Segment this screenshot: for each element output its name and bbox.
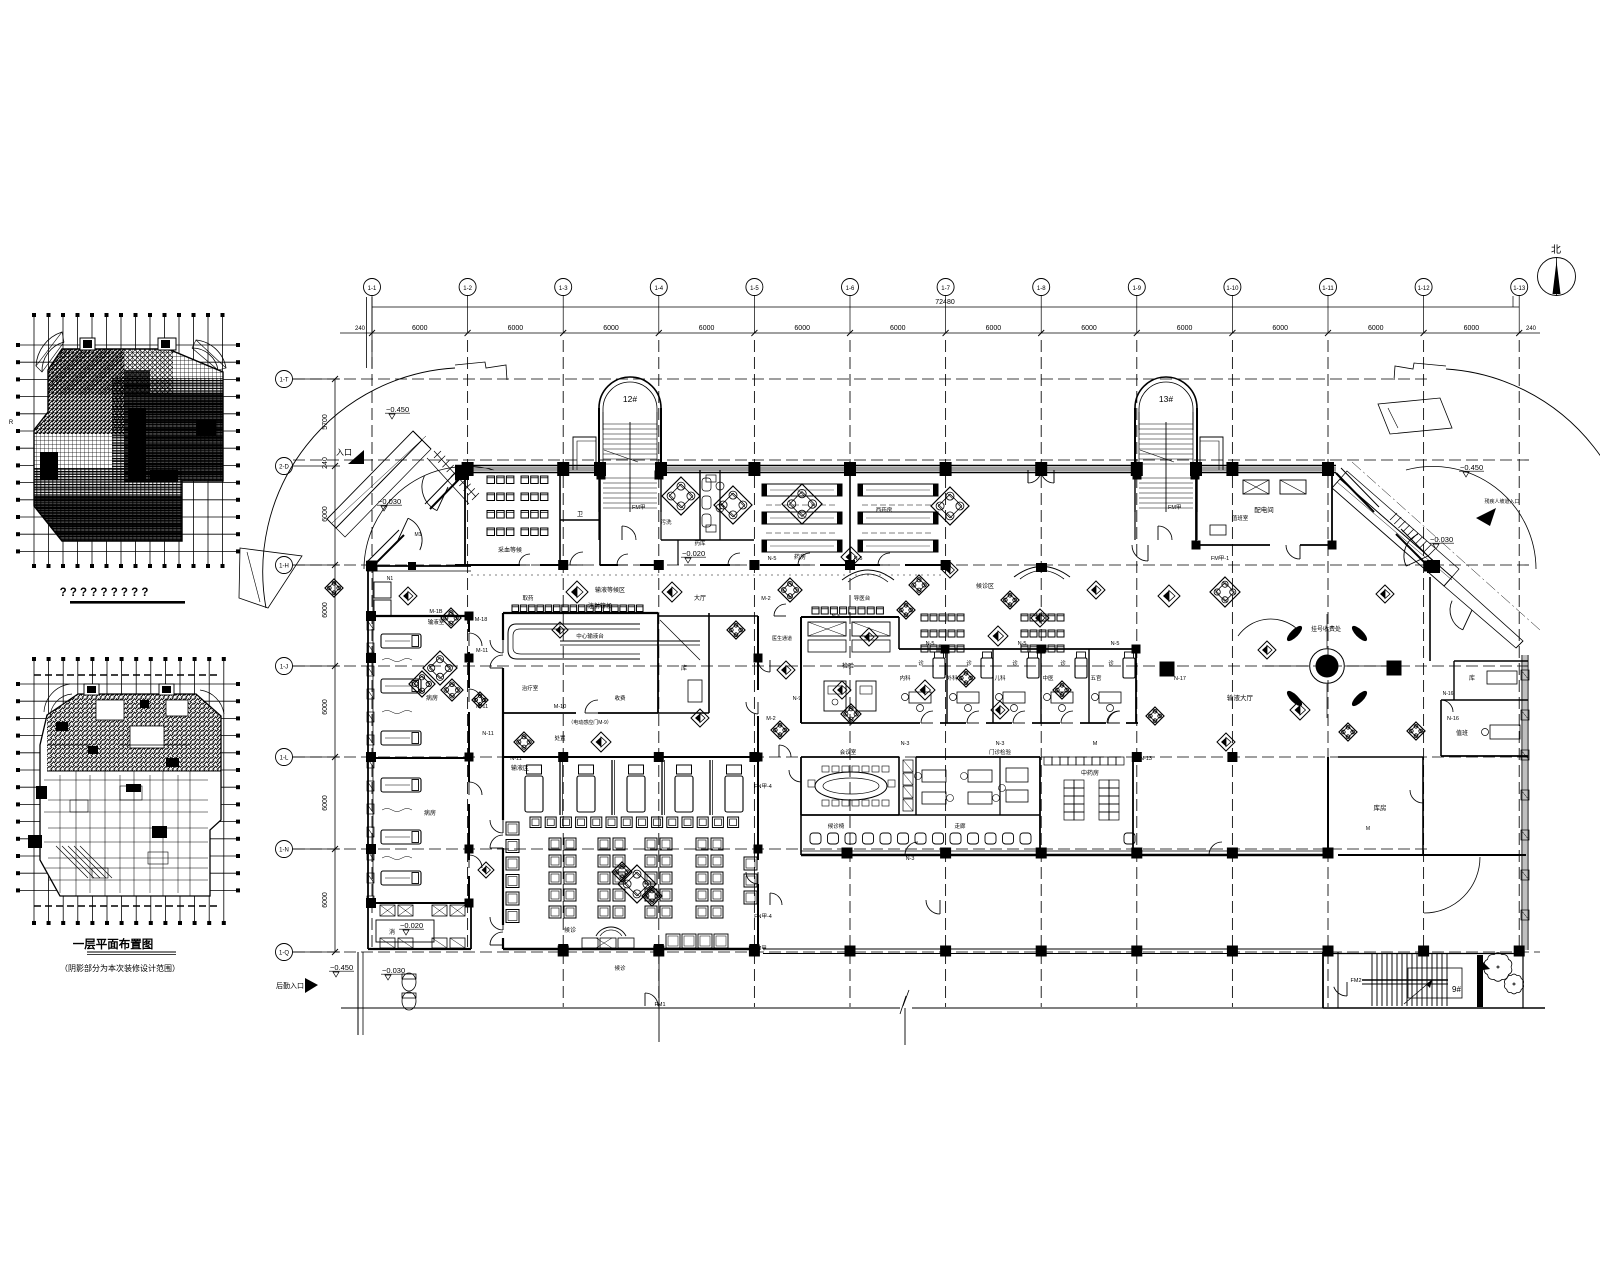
svg-text:1-8: 1-8 bbox=[1037, 286, 1046, 292]
svg-text:输液区: 输液区 bbox=[511, 764, 529, 772]
svg-text:N-9: N-9 bbox=[793, 696, 802, 702]
svg-text:R: R bbox=[9, 420, 14, 426]
svg-text:1-T: 1-T bbox=[280, 378, 289, 384]
svg-text:FM甲: FM甲 bbox=[1168, 504, 1181, 511]
svg-text:1-H: 1-H bbox=[279, 564, 289, 570]
svg-text:240: 240 bbox=[322, 457, 329, 469]
svg-text:6000: 6000 bbox=[1368, 325, 1384, 332]
svg-text:−0.450: −0.450 bbox=[386, 405, 409, 414]
svg-text:（电动感应门M-9）: （电动感应门M-9） bbox=[568, 719, 612, 726]
svg-text:N1: N1 bbox=[387, 576, 394, 582]
svg-text:中药房: 中药房 bbox=[1081, 769, 1099, 777]
svg-text:药库: 药库 bbox=[694, 539, 706, 547]
svg-text:检验: 检验 bbox=[842, 662, 854, 670]
svg-text:污洗: 污洗 bbox=[660, 518, 672, 526]
svg-text:库: 库 bbox=[681, 664, 687, 672]
svg-text:1-1: 1-1 bbox=[368, 286, 377, 292]
svg-text:2-D: 2-D bbox=[279, 465, 289, 471]
svg-text:收费: 收费 bbox=[614, 694, 626, 702]
svg-text:取药: 取药 bbox=[522, 594, 534, 602]
svg-text:一层平面布置图: 一层平面布置图 bbox=[73, 937, 154, 951]
svg-text:N-5: N-5 bbox=[832, 614, 841, 620]
svg-text:走廊: 走廊 bbox=[954, 822, 966, 830]
svg-text:N-17: N-17 bbox=[1174, 676, 1186, 682]
svg-text:N-16: N-16 bbox=[1443, 691, 1454, 697]
svg-text:1-J: 1-J bbox=[280, 665, 288, 671]
svg-text:6000: 6000 bbox=[603, 325, 619, 332]
svg-text:1-12: 1-12 bbox=[1418, 286, 1431, 292]
svg-text:挂号收费处: 挂号收费处 bbox=[1311, 625, 1341, 633]
svg-text:? ? ? ? ? ? ? ? ?: ? ? ? ? ? ? ? ? ? bbox=[60, 587, 149, 599]
svg-text:1-6: 1-6 bbox=[846, 286, 855, 292]
svg-text:诊: 诊 bbox=[1060, 659, 1066, 667]
svg-text:后勤入口: 后勤入口 bbox=[276, 981, 304, 990]
svg-text:240: 240 bbox=[355, 326, 366, 332]
svg-text:6000: 6000 bbox=[794, 325, 810, 332]
svg-text:6000: 6000 bbox=[322, 602, 329, 618]
svg-text:N-11: N-11 bbox=[482, 731, 494, 737]
svg-text:6000: 6000 bbox=[699, 325, 715, 332]
svg-text:1-4: 1-4 bbox=[654, 286, 663, 292]
svg-text:大厅: 大厅 bbox=[694, 594, 706, 602]
svg-text:候诊区: 候诊区 bbox=[976, 582, 994, 590]
svg-text:9#: 9# bbox=[1452, 985, 1461, 994]
svg-text:6000: 6000 bbox=[1081, 325, 1097, 332]
svg-text:M1: M1 bbox=[415, 532, 422, 538]
svg-text:1-10: 1-10 bbox=[1226, 286, 1239, 292]
svg-text:6000: 6000 bbox=[412, 325, 428, 332]
svg-text:候诊椅: 候诊椅 bbox=[828, 822, 845, 830]
svg-text:导医台: 导医台 bbox=[854, 594, 871, 602]
svg-text:中医: 中医 bbox=[1042, 674, 1054, 682]
svg-text:FM2: FM2 bbox=[1351, 978, 1362, 984]
svg-text:FN甲-4: FN甲-4 bbox=[754, 783, 772, 790]
svg-text:M-11: M-11 bbox=[476, 704, 488, 710]
svg-text:6000: 6000 bbox=[1464, 325, 1480, 332]
svg-text:−0.030: −0.030 bbox=[378, 497, 401, 506]
svg-text:6000: 6000 bbox=[890, 325, 906, 332]
svg-text:病房: 病房 bbox=[426, 694, 438, 702]
svg-text:1-3: 1-3 bbox=[559, 286, 568, 292]
svg-text:治疗室: 治疗室 bbox=[522, 684, 539, 692]
svg-text:1-5: 1-5 bbox=[750, 286, 759, 292]
svg-text:−0.020: −0.020 bbox=[400, 921, 423, 930]
svg-text:FM1: FM1 bbox=[655, 1002, 666, 1008]
svg-text:−0.450: −0.450 bbox=[1460, 463, 1483, 472]
svg-text:M-10: M-10 bbox=[554, 704, 567, 710]
svg-text:医生通道: 医生通道 bbox=[772, 635, 792, 642]
svg-text:N-3: N-3 bbox=[906, 856, 915, 862]
svg-text:病房: 病房 bbox=[424, 809, 436, 817]
svg-text:6000: 6000 bbox=[322, 795, 329, 811]
svg-text:FM甲: FM甲 bbox=[632, 504, 645, 511]
svg-text:FM甲-1: FM甲-1 bbox=[1211, 555, 1229, 562]
svg-text:6000: 6000 bbox=[322, 699, 329, 715]
svg-text:诊: 诊 bbox=[918, 659, 924, 667]
svg-text:注射等候: 注射等候 bbox=[588, 602, 612, 610]
svg-text:N-5: N-5 bbox=[854, 556, 863, 562]
svg-text:诊: 诊 bbox=[966, 659, 972, 667]
svg-text:1-L: 1-L bbox=[280, 756, 289, 762]
svg-text:N-3: N-3 bbox=[901, 741, 910, 747]
svg-text:儿科: 儿科 bbox=[994, 674, 1006, 682]
svg-text:（阴影部分为本次装修设计范围）: （阴影部分为本次装修设计范围） bbox=[60, 963, 180, 973]
svg-text:会议室: 会议室 bbox=[840, 748, 857, 756]
svg-text:6000: 6000 bbox=[1272, 325, 1288, 332]
svg-text:1-Q: 1-Q bbox=[279, 951, 289, 957]
svg-text:1-9: 1-9 bbox=[1132, 286, 1141, 292]
svg-text:输液等候区: 输液等候区 bbox=[595, 586, 625, 594]
svg-text:西药房: 西药房 bbox=[876, 506, 893, 514]
svg-text:候诊: 候诊 bbox=[564, 926, 576, 934]
svg-text:M-18: M-18 bbox=[475, 617, 488, 623]
svg-text:输液大厅: 输液大厅 bbox=[1227, 693, 1254, 702]
svg-text:6000: 6000 bbox=[1177, 325, 1193, 332]
svg-text:6000: 6000 bbox=[508, 325, 524, 332]
svg-text:FM甲: FM甲 bbox=[753, 945, 766, 952]
svg-text:M: M bbox=[1366, 826, 1370, 832]
svg-text:门诊检验: 门诊检验 bbox=[989, 748, 1012, 756]
svg-text:库房: 库房 bbox=[1374, 803, 1387, 812]
svg-text:内科: 内科 bbox=[899, 674, 911, 682]
svg-text:1-7: 1-7 bbox=[941, 286, 950, 292]
svg-text:诊: 诊 bbox=[1012, 659, 1018, 667]
svg-text:1-N: 1-N bbox=[279, 848, 289, 854]
svg-text:M-2: M-2 bbox=[761, 596, 770, 602]
svg-text:13#: 13# bbox=[1159, 394, 1173, 404]
svg-text:配电间: 配电间 bbox=[1254, 505, 1274, 514]
svg-text:中心输液台: 中心输液台 bbox=[576, 632, 604, 640]
svg-text:N-5: N-5 bbox=[1018, 641, 1027, 647]
svg-text:N-5: N-5 bbox=[1111, 641, 1120, 647]
svg-text:五官: 五官 bbox=[1090, 674, 1102, 682]
svg-text:采血等候: 采血等候 bbox=[498, 546, 522, 554]
svg-text:N-5: N-5 bbox=[926, 641, 935, 647]
svg-text:消: 消 bbox=[389, 928, 395, 936]
svg-text:N-3: N-3 bbox=[996, 741, 1005, 747]
svg-text:入口: 入口 bbox=[336, 448, 352, 457]
svg-text:M: M bbox=[1093, 741, 1098, 747]
svg-text:1-13: 1-13 bbox=[1513, 286, 1526, 292]
svg-text:−0.020: −0.020 bbox=[682, 549, 705, 558]
svg-text:值班室: 值班室 bbox=[1232, 514, 1249, 522]
svg-text:库: 库 bbox=[1469, 674, 1475, 682]
svg-text:残疾人坡道入口: 残疾人坡道入口 bbox=[1484, 498, 1519, 505]
svg-text:M-2: M-2 bbox=[766, 716, 775, 722]
svg-text:N-16: N-16 bbox=[1447, 716, 1459, 722]
svg-text:−0.450: −0.450 bbox=[330, 963, 353, 972]
svg-text:候诊: 候诊 bbox=[614, 964, 626, 972]
svg-text:240: 240 bbox=[1526, 326, 1537, 332]
svg-text:N-5: N-5 bbox=[768, 556, 777, 562]
svg-text:1-11: 1-11 bbox=[1322, 286, 1334, 292]
svg-text:M-11: M-11 bbox=[476, 648, 488, 654]
svg-text:FN甲-4: FN甲-4 bbox=[754, 913, 772, 920]
svg-text:M-1B: M-1B bbox=[429, 609, 442, 615]
svg-text:−0.030: −0.030 bbox=[382, 966, 405, 975]
svg-text:6000: 6000 bbox=[322, 892, 329, 908]
svg-text:6000: 6000 bbox=[986, 325, 1002, 332]
svg-text:−0.030: −0.030 bbox=[1430, 535, 1453, 544]
svg-text:1-2: 1-2 bbox=[463, 286, 472, 292]
svg-text:72480: 72480 bbox=[935, 299, 955, 306]
svg-text:处置: 处置 bbox=[554, 734, 566, 742]
svg-text:N-13: N-13 bbox=[1140, 756, 1152, 762]
svg-text:北: 北 bbox=[1551, 244, 1561, 256]
svg-text:诊: 诊 bbox=[1108, 659, 1114, 667]
svg-text:值班: 值班 bbox=[1456, 729, 1468, 737]
svg-text:卫: 卫 bbox=[577, 511, 583, 518]
svg-text:12#: 12# bbox=[623, 394, 637, 404]
svg-text:N-11: N-11 bbox=[510, 756, 522, 762]
